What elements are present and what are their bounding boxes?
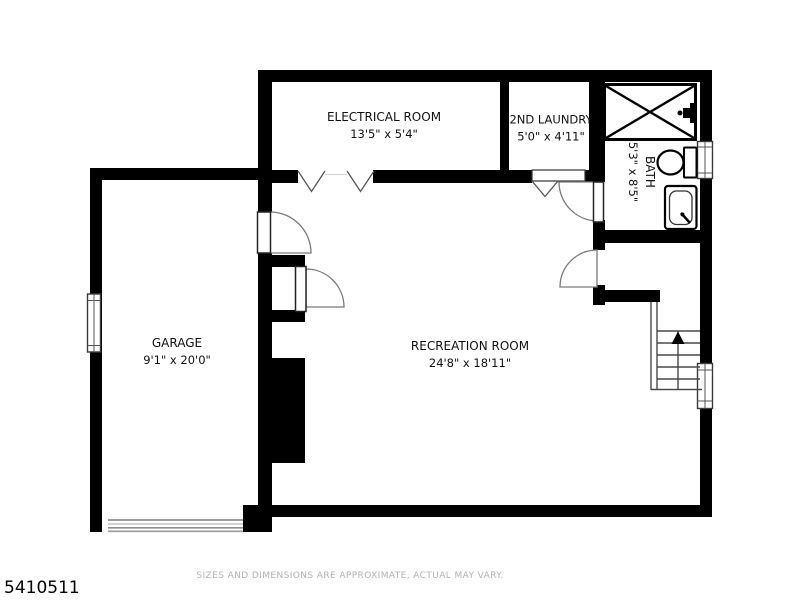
- door-swing-garage: [270, 212, 311, 253]
- wall-garage-rec-divider-upper: [258, 180, 272, 212]
- wall-top: [258, 70, 712, 82]
- room-dimensions: 5'0" x 4'11": [509, 128, 592, 145]
- door-symbols: [258, 170, 604, 312]
- wall-right-a: [700, 70, 712, 143]
- wall-electrical-bottom-left: [272, 170, 298, 183]
- wall-right-c: [700, 408, 712, 517]
- room-name: GARAGE: [143, 335, 211, 352]
- wall-garage-bottom-right-block: [243, 505, 272, 532]
- room-name: 2ND LAUNDRY: [509, 111, 592, 128]
- door-swing-landing: [560, 250, 597, 287]
- room-name: ELECTRICAL ROOM: [327, 109, 441, 126]
- toilet: [658, 148, 697, 178]
- room-dimensions: 5'3" x 8'5": [624, 142, 641, 202]
- wall-right-b: [700, 178, 712, 365]
- room-dimensions: 24'8" x 18'11": [411, 355, 529, 372]
- wall-laundry-bottom-right: [585, 170, 605, 182]
- stairs-up-arrow-icon: [672, 332, 685, 345]
- wall-electrical-left: [258, 82, 272, 183]
- wall-bath-bottom: [593, 230, 702, 243]
- garage-door: [102, 517, 243, 532]
- room-label-electrical: ELECTRICAL ROOM 13'5" x 5'4": [327, 109, 441, 143]
- door-swing-bath-entry: [559, 182, 598, 221]
- bath-window: [698, 142, 713, 179]
- room-label-recreation: RECREATION ROOM 24'8" x 18'11": [411, 338, 529, 372]
- stair-window: [698, 364, 713, 409]
- room-name: RECREATION ROOM: [411, 338, 529, 355]
- wall-recreation-bottom: [258, 505, 712, 517]
- room-dimensions: 9'1" x 20'0": [143, 352, 211, 369]
- disclaimer-text: SIZES AND DIMENSIONS ARE APPROXIMATE, AC…: [196, 571, 503, 581]
- room-label-laundry: 2ND LAUNDRY 5'0" x 4'11": [509, 111, 592, 144]
- wall-garage-top: [90, 168, 272, 180]
- room-label-bath: BATH 5'3" x 8'5": [624, 142, 658, 202]
- closet-top-bar: [272, 255, 305, 267]
- wall-garage-rec-divider-lower: [258, 253, 272, 505]
- staircase: [651, 302, 702, 390]
- bifold-door-electrical-right: [347, 171, 374, 192]
- sink-vanity: [665, 186, 697, 229]
- door-leaf-bath-entry: [594, 182, 604, 222]
- floor-plan-page: ELECTRICAL ROOM 13'5" x 5'4" 2ND LAUNDRY…: [0, 0, 800, 600]
- laundry-opening-header: [532, 170, 585, 181]
- wall-electrical-bottom-right: [373, 170, 532, 183]
- door-swing-closet: [306, 269, 344, 307]
- floor-plan-drawing: [0, 0, 800, 600]
- door-leaf-closet: [296, 267, 307, 312]
- room-dimensions: 13'5" x 5'4": [327, 126, 441, 143]
- room-name: BATH: [641, 142, 658, 202]
- garage-window: [88, 294, 101, 352]
- door-leaf-garage: [258, 212, 271, 253]
- wall-electrical-laundry-divider: [500, 82, 509, 170]
- chimney-mass: [272, 358, 305, 463]
- wall-landing-stub: [593, 290, 660, 302]
- bifold-door-laundry-left: [532, 181, 558, 197]
- id-number: 5410511: [4, 578, 80, 598]
- bifold-door-electrical-left: [298, 171, 325, 192]
- room-label-garage: GARAGE 9'1" x 20'0": [143, 335, 211, 369]
